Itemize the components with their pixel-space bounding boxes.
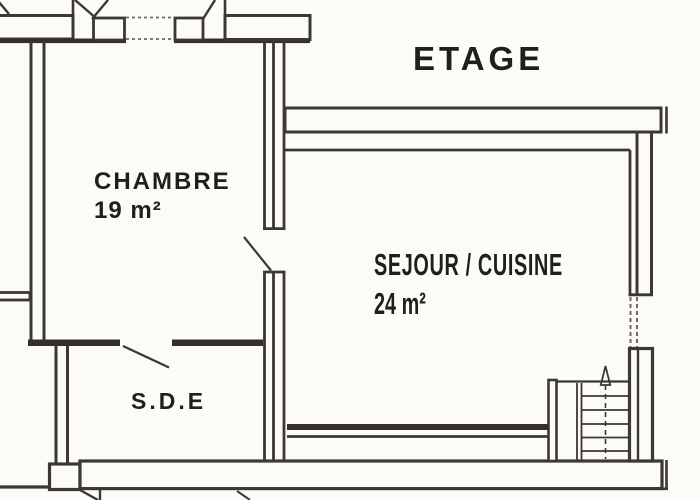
wall-cut-mark (80, 490, 98, 500)
floor-title: ETAGE (413, 42, 544, 75)
staircase (549, 366, 630, 461)
sejour-bottom-wall (287, 424, 549, 437)
wall-cut-mark (0, 1, 9, 14)
right-exterior-wall (629, 132, 654, 461)
chambre-sejour-divider-wall (263, 41, 286, 461)
floor-plan-drawing (0, 0, 700, 500)
wall-cut-mark (237, 491, 250, 500)
left-exterior-wall (0, 41, 44, 344)
wall-post (50, 464, 81, 490)
wall-cut-mark (92, 0, 108, 19)
sejour-top-wall (285, 107, 667, 151)
room-area-chambre: 19 m² (94, 199, 162, 223)
bottom-exterior-wall (0, 460, 668, 500)
room-label-chambre: CHAMBRE (94, 170, 231, 194)
wall-cut-mark (203, 0, 215, 19)
wall-stub (0, 293, 30, 301)
door-swing-chambre-sejour (244, 237, 271, 271)
wall-post (94, 18, 125, 40)
room-area-sejour-cuisine: 24 m² (374, 288, 426, 319)
wall-post (175, 18, 203, 40)
door-swing-sde (123, 346, 169, 368)
stair-rail (549, 380, 557, 461)
floor-plan: ETAGE CHAMBRE 19 m² SEJOUR / CUISINE 24 … (0, 0, 700, 500)
room-label-sejour-cuisine: SEJOUR / CUISINE (374, 249, 563, 280)
room-label-sde: S.D.E (131, 390, 206, 413)
top-exterior-wall (0, 0, 310, 43)
